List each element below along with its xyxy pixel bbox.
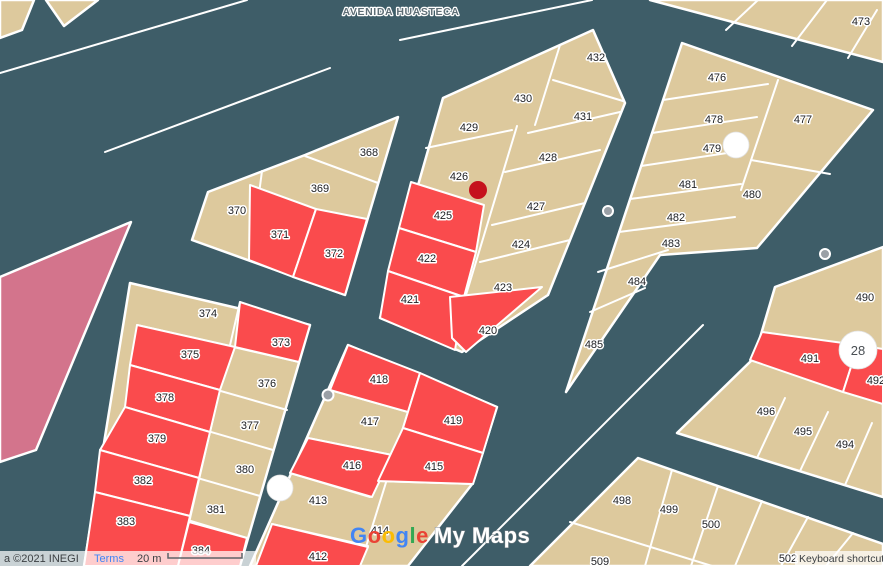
logo-letter: G xyxy=(350,523,368,548)
map-canvas[interactable]: 473 432 430 431 429 428 426 427 424 423 … xyxy=(0,0,883,566)
parcel-label-481: 481 xyxy=(679,179,697,191)
parcel-label-378: 378 xyxy=(156,392,174,404)
logo-letter: e xyxy=(416,523,429,548)
parcel-label-422: 422 xyxy=(418,253,436,265)
white-circle-marker[interactable] xyxy=(723,132,749,158)
logo-letter: l xyxy=(409,523,416,548)
parcel-label-375: 375 xyxy=(181,349,199,361)
numbered-circle-label: 28 xyxy=(851,343,865,358)
parcel-label-502: 502 xyxy=(779,553,797,565)
terms-link[interactable]: Terms xyxy=(94,553,124,565)
parcel-label-473: 473 xyxy=(852,16,870,28)
parcel-label-421: 421 xyxy=(401,294,419,306)
logo-letter: o xyxy=(368,523,382,548)
scale-label: 20 m xyxy=(137,553,161,565)
parcel-label-377: 377 xyxy=(241,420,259,432)
attribution-bar: a ©2021 INEGI Terms 20 m xyxy=(0,551,256,566)
parcel-label-415: 415 xyxy=(425,461,443,473)
parcel-label-491: 491 xyxy=(801,353,819,365)
parcel-label-426: 426 xyxy=(450,171,468,183)
parcel-label-376: 376 xyxy=(258,378,276,390)
parcel-label-498: 498 xyxy=(613,495,631,507)
red-dot-marker[interactable] xyxy=(469,181,487,199)
parcel-label-383: 383 xyxy=(117,516,135,528)
logo-letter: o xyxy=(382,523,396,548)
white-circle-marker[interactable] xyxy=(267,475,293,501)
parcel-label-425: 425 xyxy=(434,210,452,222)
parcel-label-509: 509 xyxy=(591,556,609,566)
parcel-label-428: 428 xyxy=(539,152,557,164)
gray-dot-marker[interactable] xyxy=(323,390,334,401)
parcel-label-430: 430 xyxy=(514,93,532,105)
parcel-label-477: 477 xyxy=(794,114,812,126)
numbered-circle-marker[interactable]: 28 xyxy=(839,331,877,369)
parcel-label-423: 423 xyxy=(494,282,512,294)
logo-letter: g xyxy=(396,523,410,548)
parcel-label-420: 420 xyxy=(479,325,497,337)
parcel-label-417: 417 xyxy=(361,416,379,428)
parcel-label-479: 479 xyxy=(703,143,721,155)
parcel-label-379: 379 xyxy=(148,433,166,445)
keyboard-shortcuts[interactable]: Keyboard shortcuts xyxy=(795,551,883,566)
gray-dot-marker[interactable] xyxy=(603,206,613,216)
parcel-label-478: 478 xyxy=(705,114,723,126)
logo-suffix: My Maps xyxy=(434,523,530,548)
parcel-label-368: 368 xyxy=(360,147,378,159)
parcel-label-416: 416 xyxy=(343,460,361,472)
parcel-label-373: 373 xyxy=(272,337,290,349)
parcel-label-494: 494 xyxy=(836,439,854,451)
parcel-label-369: 369 xyxy=(311,183,329,195)
parcel-label-499: 499 xyxy=(660,504,678,516)
my-maps-viewport: 473 432 430 431 429 428 426 427 424 423 … xyxy=(0,0,883,566)
parcel-label-495: 495 xyxy=(794,426,812,438)
parcel-label-485: 485 xyxy=(585,339,603,351)
parcel-label-490: 490 xyxy=(856,292,874,304)
parcel-label-380: 380 xyxy=(236,464,254,476)
parcel-label-371: 371 xyxy=(271,229,289,241)
parcel-label-480: 480 xyxy=(743,189,761,201)
parcel-label-484: 484 xyxy=(628,276,646,288)
street-label: AVENIDA HUASTECA xyxy=(343,6,460,18)
parcel-label-476: 476 xyxy=(708,72,726,84)
parcel-label-427: 427 xyxy=(527,201,545,213)
map-copyright: a ©2021 INEGI xyxy=(4,553,79,565)
parcel-label-413: 413 xyxy=(309,495,327,507)
parcel-label-429: 429 xyxy=(460,122,478,134)
gray-dot-marker[interactable] xyxy=(820,249,830,259)
parcel-label-496: 496 xyxy=(757,406,775,418)
parcel-label-382: 382 xyxy=(134,475,152,487)
keyboard-shortcuts-label[interactable]: Keyboard shortcuts xyxy=(799,553,883,565)
parcel-label-374: 374 xyxy=(199,308,217,320)
parcel-label-370: 370 xyxy=(228,205,246,217)
parcel-label-412: 412 xyxy=(309,551,327,563)
parcel-label-482: 482 xyxy=(667,212,685,224)
parcel-label-418: 418 xyxy=(370,374,388,386)
parcel-label-500: 500 xyxy=(702,519,720,531)
parcel-label-424: 424 xyxy=(512,239,530,251)
parcel-label-419: 419 xyxy=(444,415,462,427)
parcel-label-483: 483 xyxy=(662,238,680,250)
parcel-label-372: 372 xyxy=(325,248,343,260)
google-my-maps-logo: GoogleMy Maps xyxy=(350,523,530,548)
parcel-label-381: 381 xyxy=(207,504,225,516)
parcel-label-431: 431 xyxy=(574,111,592,123)
parcel-label-432: 432 xyxy=(587,52,605,64)
parcel-label-492: 492 xyxy=(867,375,883,387)
